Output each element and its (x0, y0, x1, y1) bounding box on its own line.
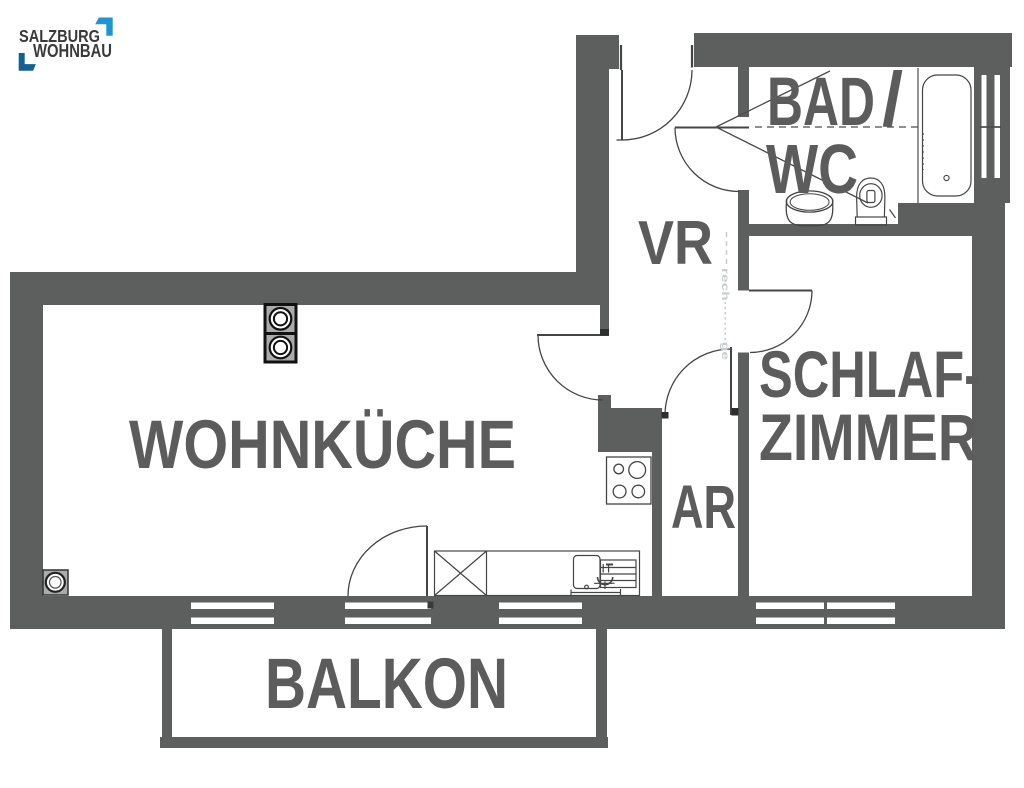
svg-text:rech········ge: rech········ge (719, 268, 730, 361)
svg-text:ZIMMER: ZIMMER (759, 400, 978, 474)
svg-text:VR: VR (638, 209, 713, 278)
svg-text:AR: AR (671, 473, 736, 541)
svg-text:BALKON: BALKON (265, 645, 508, 724)
svg-text:BAD: BAD (767, 63, 875, 140)
svg-text:WC: WC (766, 130, 858, 208)
svg-text:/: / (882, 57, 903, 142)
svg-text:WOHNKÜCHE: WOHNKÜCHE (129, 406, 516, 483)
svg-text:WOHNBAU: WOHNBAU (33, 41, 112, 61)
